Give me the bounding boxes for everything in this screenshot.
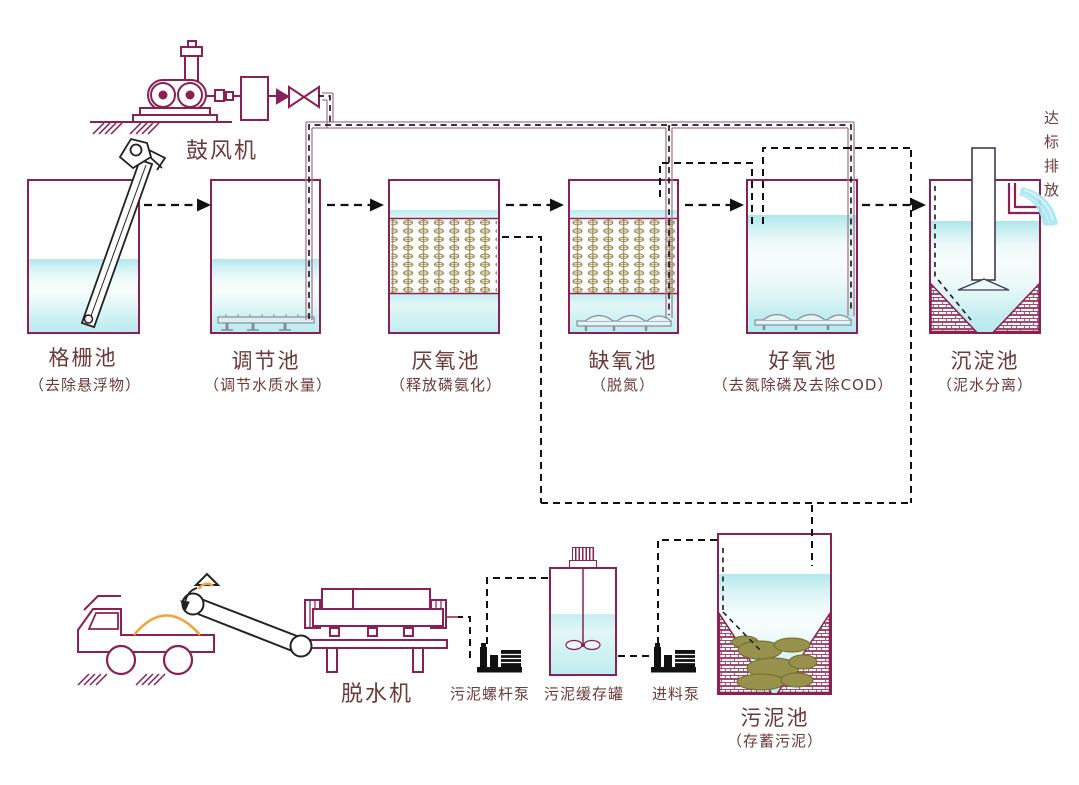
feed-pump-label: 进料泵	[652, 683, 700, 704]
sludge-mound	[134, 616, 200, 636]
discharge-marker-icon	[196, 574, 218, 585]
ground-hatch-blower	[93, 123, 159, 134]
dewaterer-label: 脱水机	[341, 676, 413, 708]
discharge-arc	[199, 584, 213, 589]
tank-label-anoxic: 缺氧池	[589, 345, 658, 375]
aerobic-tank-water	[748, 215, 856, 332]
blower-unit	[90, 41, 319, 134]
tank-desc-sedimentation: （泥水分离）	[937, 374, 1033, 395]
anaerobic-tank-water	[390, 294, 498, 332]
regulating-tank-water	[212, 259, 319, 332]
diagram-lineart	[0, 0, 1079, 785]
tank-label-anaerobic: 厌氧池	[412, 345, 481, 375]
blower-label: 鼓风机	[186, 133, 258, 165]
sludge-buffer-tank	[549, 567, 617, 676]
tank-desc-regulating: （调节水质水量）	[204, 374, 332, 395]
feed-pump-icon	[651, 643, 696, 673]
screw-pump-icon	[477, 643, 522, 673]
dewatering-machine	[305, 589, 458, 672]
sludge-tank-label: 污泥池	[741, 702, 810, 732]
screw-pump-label: 污泥螺杆泵	[450, 683, 530, 704]
sludge-tank-desc: （存蓄污泥）	[727, 730, 823, 751]
truck-wheel	[107, 646, 135, 674]
check-valve-icon	[277, 90, 288, 103]
sedimentation-tank	[929, 179, 1041, 334]
aerobic-tank	[746, 179, 858, 334]
anaerobic-tank-surface	[390, 210, 498, 219]
process-flow-diagram: 鼓风机 格栅池 （去除悬浮物） 调节池 （调节水质水量） 厌氧池 （释放磷氨化）…	[0, 0, 1079, 785]
tank-label-grid: 格栅池	[49, 342, 118, 372]
sludge-truck	[78, 596, 214, 685]
tank-desc-aerobic: （去氮除磷及去除COD）	[713, 374, 894, 395]
mixer-motor-flange	[569, 560, 597, 568]
anoxic-tank	[568, 179, 679, 334]
ground-hatch-truck	[78, 674, 165, 685]
anoxic-tank-surface	[570, 210, 677, 219]
blower-motor-box	[241, 77, 268, 120]
sludge-to-feedpump-line	[658, 540, 717, 646]
anaerobic-tank	[388, 179, 500, 334]
buffer-tank-label: 污泥缓存罐	[544, 683, 624, 704]
drop-arrow-icon	[181, 601, 189, 611]
sludge-storage-tank	[717, 533, 832, 695]
grid-tank	[27, 179, 140, 334]
screwpump-to-dewaterer-line	[458, 617, 470, 658]
buffer-tank-water	[551, 614, 615, 674]
tank-desc-grid: （去除悬浮物）	[29, 374, 141, 395]
tank-desc-anoxic: （脱氮）	[591, 374, 655, 395]
regulating-tank	[210, 179, 321, 334]
gate-valve-icon	[289, 87, 319, 107]
discharge-label: 达标排放	[1041, 110, 1062, 206]
tank-desc-anaerobic: （释放磷氨化）	[390, 374, 502, 395]
anaerobic-sludge-line	[502, 237, 541, 503]
truck-wheel	[164, 646, 192, 674]
tank-label-aerobic: 好氧池	[769, 345, 838, 375]
buffer-to-screwpump-line	[487, 578, 548, 645]
tank-label-sedimentation: 沉淀池	[951, 345, 1020, 375]
grid-tank-water	[29, 259, 138, 332]
tank-label-regulating: 调节池	[232, 345, 301, 375]
anoxic-tank-water	[570, 294, 677, 332]
conveyor-belt	[181, 574, 312, 657]
sedimentation-tank-water	[931, 221, 1039, 332]
sludge-tank-water	[719, 574, 830, 693]
